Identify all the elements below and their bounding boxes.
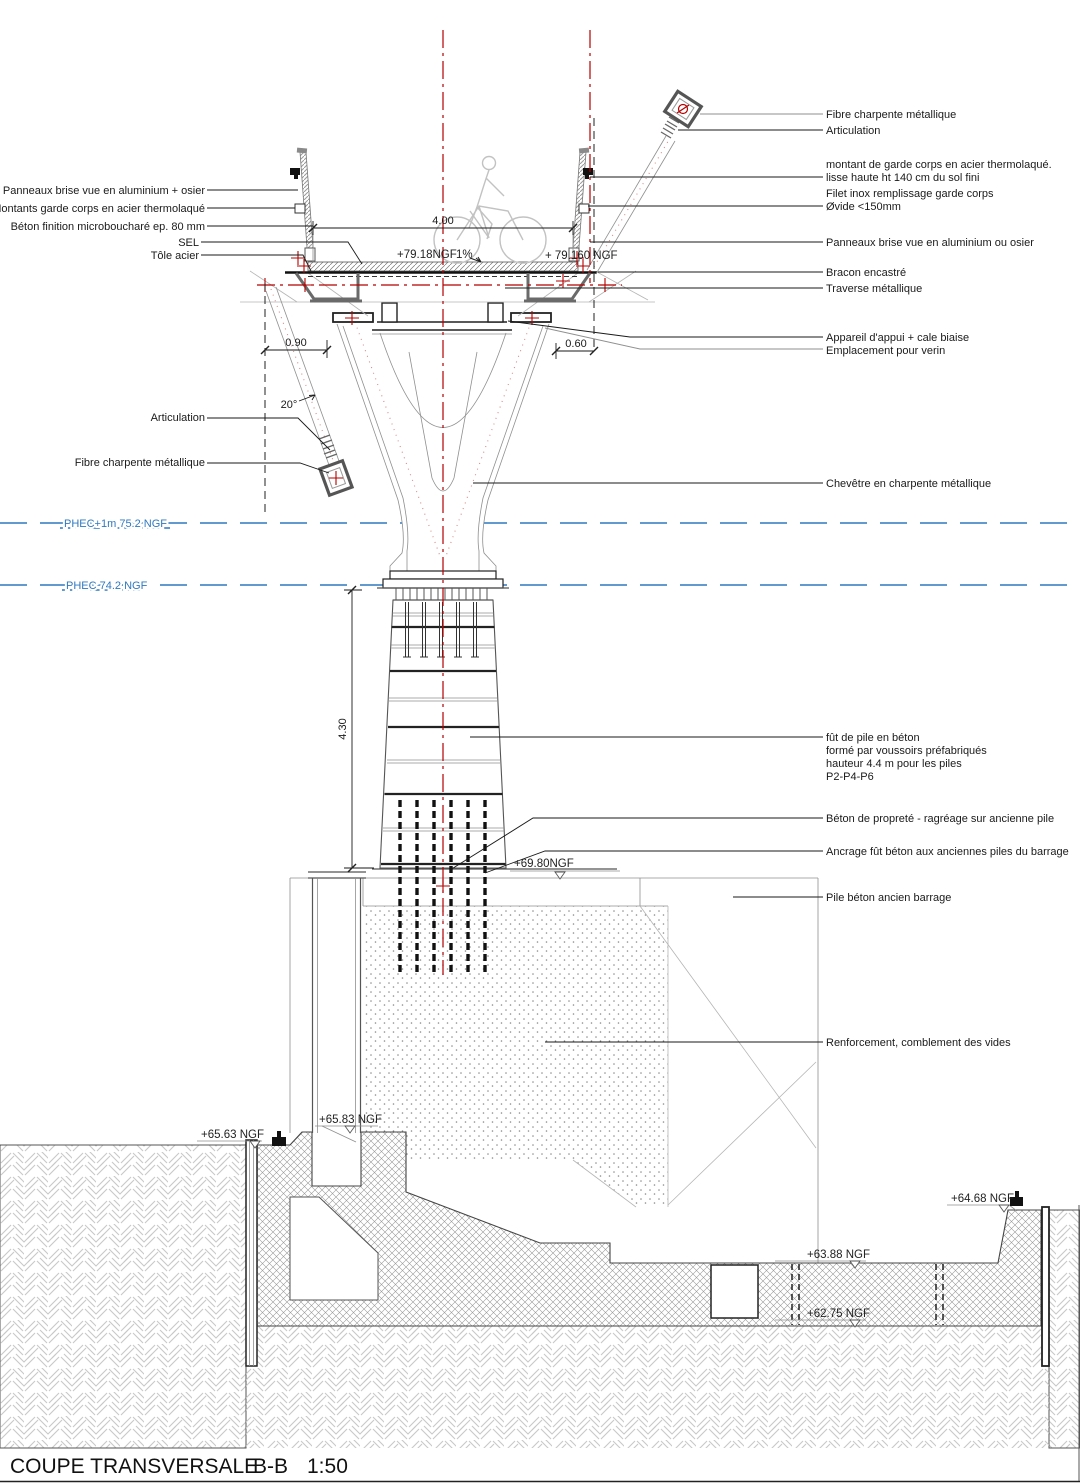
level-bed-lower: +62.75 NGF: [807, 1308, 870, 1320]
label-fut-2: formé par voussoirs préfabriqués: [826, 745, 987, 757]
label-tole-acier: Tôle acier: [151, 250, 200, 262]
level-bank-right: +64.68 NGF: [951, 1193, 1014, 1205]
flood-level-lines: [0, 523, 1080, 590]
cross-section-drawing: 4.00 0.90 0.60 20° 4.30: [0, 0, 1080, 1483]
phec-lower-label: PHEC 74.2 NGF: [66, 580, 148, 592]
dim-right-offset-value: 0.60: [565, 338, 586, 350]
guardrails: [290, 148, 593, 261]
right-strut: [587, 91, 701, 274]
label-panneaux-right: Panneaux brise vue en aluminium ou osier: [826, 237, 1034, 249]
chevetre-v-frame: [271, 138, 670, 600]
label-beton-proprete: Béton de propreté - ragréage sur ancienn…: [826, 813, 1054, 825]
label-montant-right-2: lisse haute ht 140 cm du sol fini: [826, 172, 979, 184]
dim-pier-height: 4.30: [337, 586, 374, 872]
drawing-sheet: 4.00 0.90 0.60 20° 4.30: [0, 0, 1080, 1483]
dim-left-offset-value: 0.90: [285, 337, 306, 349]
left-post-cap: [297, 148, 307, 154]
bottom-soil: [257, 1326, 1041, 1448]
label-fut-1: fût de pile en béton: [826, 732, 920, 744]
section-mark: B-B: [253, 1455, 288, 1478]
label-chevetre: Chevêtre en charpente métallique: [826, 478, 991, 490]
left-sheet-pile: [246, 1140, 257, 1366]
drawing-scale: 1:50: [307, 1455, 348, 1478]
cyclist-silhouette: [434, 157, 546, 264]
phec-upper-label: PHEC+1m 75.2 NGF: [64, 518, 167, 530]
level-deck-left: +79.18NGF: [397, 249, 457, 261]
right-post-cap: [579, 148, 589, 154]
bearing-left: [382, 303, 397, 322]
label-montant-right-1: montant de garde corps en acier thermola…: [826, 159, 1052, 171]
label-renforcement: Renforcement, comblement des vides: [826, 1037, 1011, 1049]
label-appareil-appui: Appareil d'appui + cale biaise: [826, 332, 969, 344]
gallery-void: [711, 1265, 758, 1318]
label-ovide: Øvide <150mm: [826, 201, 901, 213]
dim-pier-height-value: 4.30: [337, 718, 349, 739]
label-verin: Emplacement pour verin: [826, 345, 945, 357]
label-articulation-left: Articulation: [151, 412, 205, 424]
dim-left-offset: 0.90: [261, 337, 331, 358]
label-fut-3: hauteur 4.4 m pour les piles: [826, 758, 962, 770]
drawing-title: COUPE TRANSVERSALE: [10, 1455, 258, 1478]
level-ground-left: +65.63 NGF: [201, 1129, 264, 1141]
dim-right-offset: 0.60: [552, 338, 598, 359]
dim-bracon-angle: 20°: [281, 395, 315, 411]
dim-angle-value: 20°: [281, 399, 298, 411]
reinforcement-fill-region: [363, 906, 668, 1207]
label-montants-left: Montants garde corps en acier thermolaqu…: [0, 203, 205, 215]
label-ancrage: Ancrage fût béton aux anciennes piles du…: [826, 846, 1069, 858]
deck: [240, 262, 655, 316]
level-deck-right: + 79.160 NGF: [545, 250, 618, 262]
right-sheet-pile: [1042, 1207, 1049, 1366]
label-fibre-left: Fibre charpente métallique: [75, 457, 205, 469]
label-filet-inox: Filet inox remplissage garde corps: [826, 188, 994, 200]
label-articulation-right: Articulation: [826, 125, 880, 137]
survey-marker-left: [272, 1137, 286, 1146]
leader-lines: [201, 114, 823, 1042]
label-traverse: Traverse métallique: [826, 283, 922, 295]
left-bank-soil: [0, 1145, 246, 1448]
label-beton-finition: Béton finition microboucharé ep. 80 mm: [11, 221, 205, 233]
level-deck-slope: 1%: [456, 249, 473, 261]
label-sel: SEL: [178, 237, 199, 249]
caisson-shaft: [308, 872, 366, 1133]
label-pile-beton: Pile béton ancien barrage: [826, 892, 951, 904]
label-bracon: Bracon encastré: [826, 267, 906, 279]
label-fibre-right: Fibre charpente métallique: [826, 109, 956, 121]
level-bed-upper: +63.88 NGF: [807, 1249, 870, 1261]
dim-deck-width-value: 4.00: [432, 215, 453, 227]
label-panneaux-left: Panneaux brise vue en aluminium + osier: [3, 185, 205, 197]
right-bank-soil: [1049, 1210, 1080, 1448]
bearing-right: [488, 303, 503, 322]
label-fut-4: P2-P4-P6: [826, 771, 874, 783]
level-caisson: +65.83 NGF: [319, 1114, 382, 1126]
level-pier-base: +69.80NGF: [514, 858, 574, 870]
